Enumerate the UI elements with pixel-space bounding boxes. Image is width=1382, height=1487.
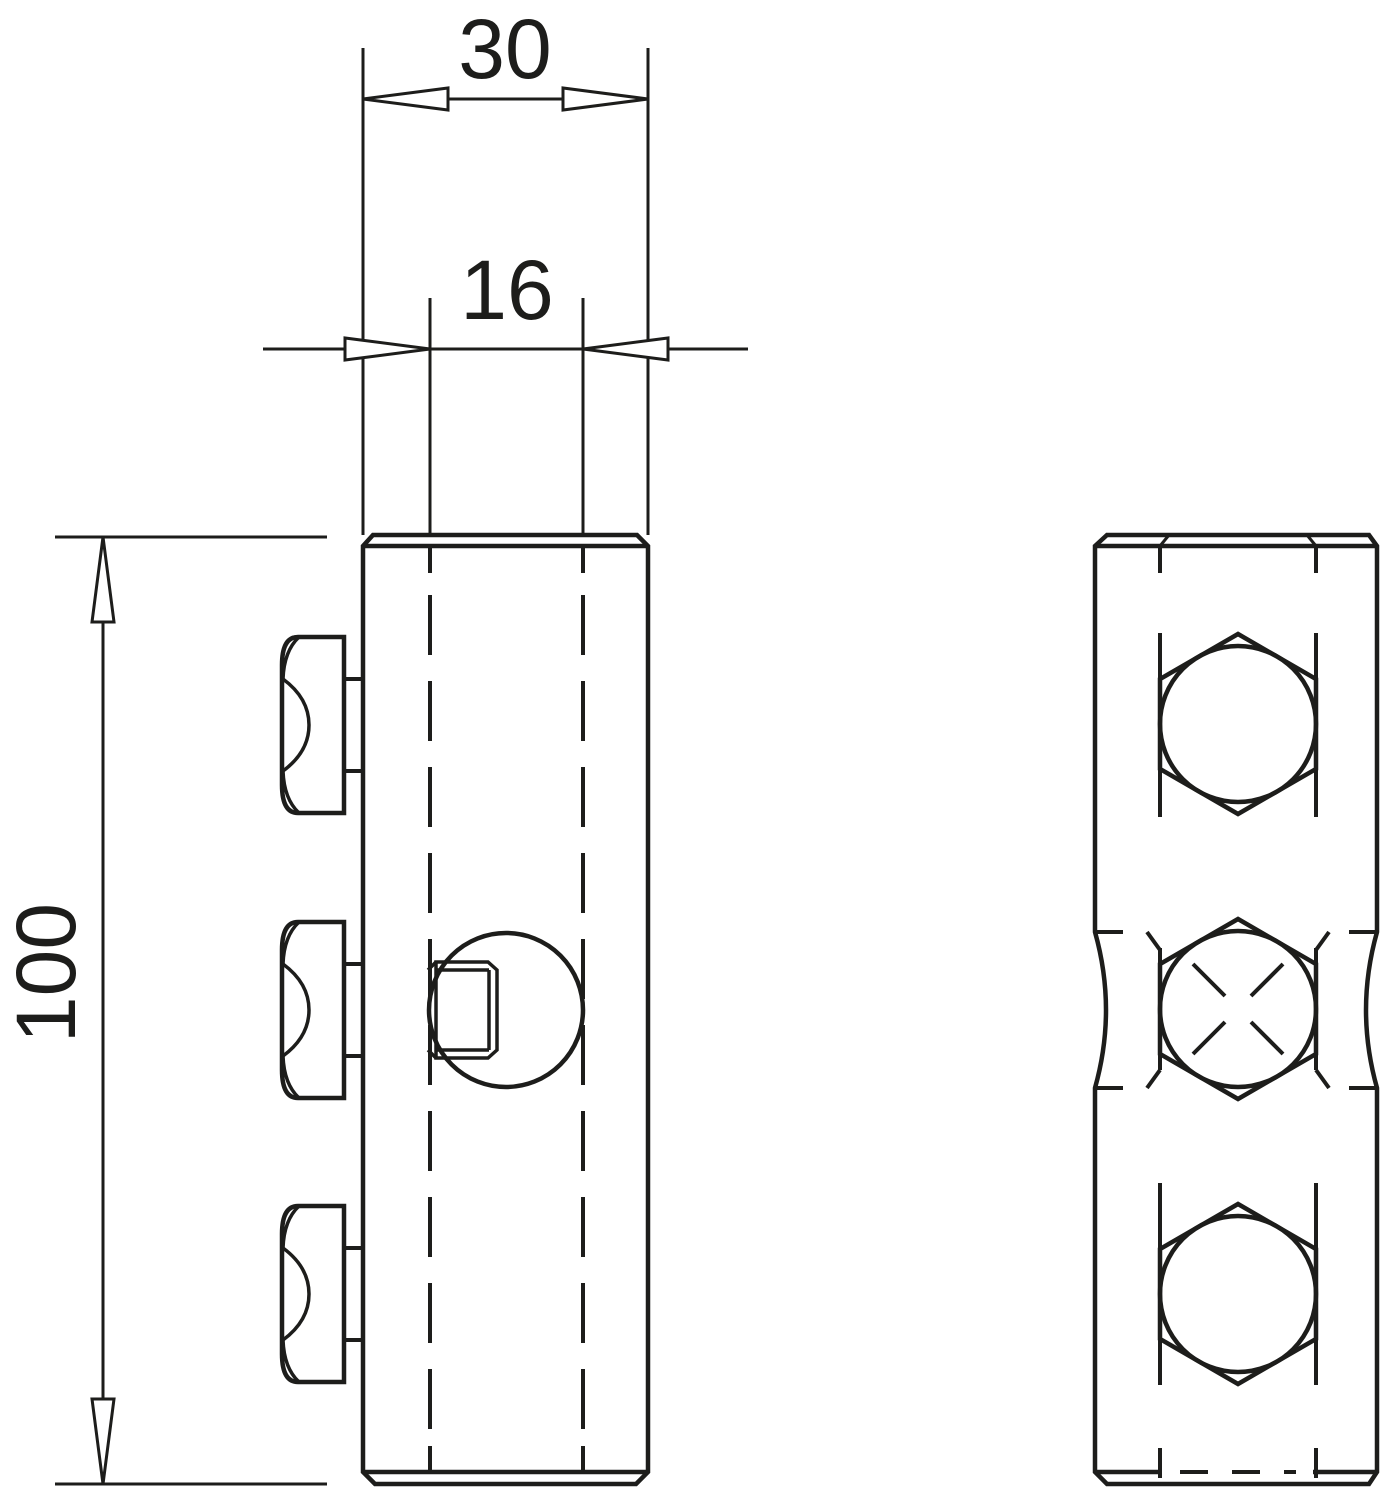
bolt-facet-middle <box>283 1248 309 1340</box>
inscribed-circle <box>1160 1216 1316 1372</box>
inscribed-circle <box>1160 646 1316 802</box>
dimension-16: 16 <box>263 243 748 535</box>
side-view <box>1095 535 1377 1484</box>
hex-head-bottom <box>1160 1204 1316 1384</box>
arrowhead-right-icon <box>563 88 648 110</box>
hexagon <box>1160 1204 1316 1384</box>
cross-mark-icon <box>1193 964 1283 1054</box>
bolt-head-outline <box>282 922 344 1098</box>
waist-boundaries <box>1095 932 1377 1088</box>
arrowhead-left-icon <box>345 338 430 360</box>
technical-drawing-page: 30 16 100 <box>0 0 1382 1487</box>
dimension-16-label: 16 <box>460 243 553 337</box>
arrowhead-top-icon <box>92 537 114 622</box>
bolt-head-outline <box>282 1206 344 1382</box>
hexagon <box>1160 919 1316 1099</box>
arrowhead-right-icon <box>583 338 668 360</box>
hex-head-top <box>1160 634 1316 814</box>
arrowhead-left-icon <box>363 88 448 110</box>
dimension-100-label: 100 <box>0 903 93 1043</box>
dimension-30-label: 30 <box>458 2 551 96</box>
center-hole <box>429 933 583 1087</box>
front-view <box>282 535 648 1484</box>
body-outline <box>1095 535 1377 1484</box>
bolt-facet-middle <box>283 679 309 771</box>
hex-bolt-top <box>282 637 363 813</box>
hexagon <box>1160 634 1316 814</box>
bolt-head-outline <box>282 637 344 813</box>
inscribed-circle <box>1160 931 1316 1087</box>
hex-head-middle <box>1160 919 1316 1099</box>
arrowhead-bottom-icon <box>92 1399 114 1484</box>
body-outline <box>363 535 648 1484</box>
dimension-drawing-canvas: 30 16 100 <box>0 0 1382 1487</box>
bolt-facet-middle <box>283 964 309 1056</box>
hex-bolt-middle <box>282 922 363 1098</box>
hex-bolt-bottom <box>282 1206 363 1382</box>
dimension-100: 100 <box>0 537 327 1484</box>
